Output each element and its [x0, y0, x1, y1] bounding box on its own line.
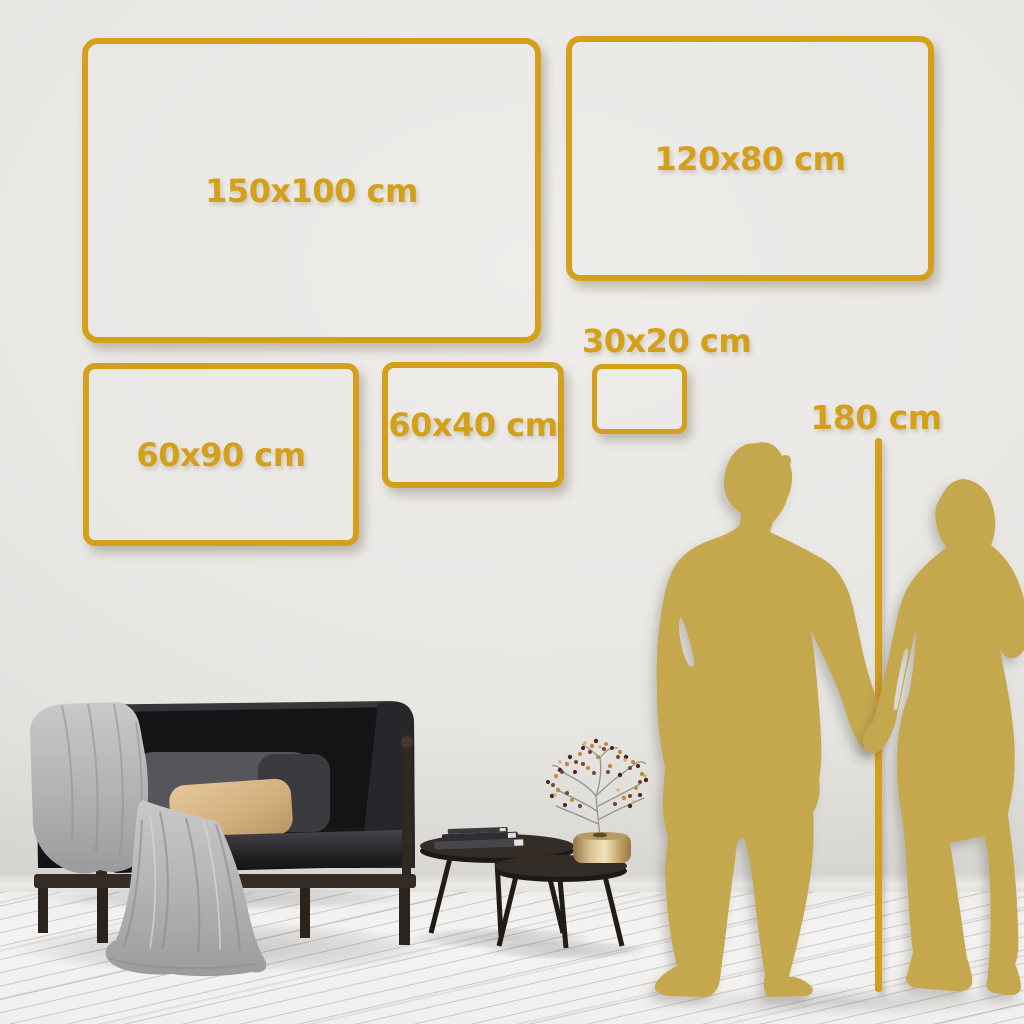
- book-stack: [434, 826, 525, 849]
- size-frame-150x100: 150x100 cm: [82, 38, 541, 343]
- size-frame-60x90: 60x90 cm: [83, 363, 359, 546]
- man-silhouette: [655, 442, 887, 997]
- size-label-30x20: 30x20 cm: [582, 322, 744, 360]
- woman-silhouette: [863, 479, 1024, 995]
- couple-silhouette: [630, 420, 1024, 1024]
- size-label-60x40: 60x40 cm: [388, 406, 557, 444]
- furniture-scene: [0, 680, 680, 1024]
- size-label-120x80: 120x80 cm: [655, 140, 846, 178]
- coffee-tables-illustration: [420, 739, 648, 948]
- size-frame-60x40: 60x40 cm: [382, 362, 564, 488]
- size-guide-image: 150x100 cm 120x80 cm 60x90 cm 60x40 cm 3…: [0, 0, 1024, 1024]
- size-label-150x100: 150x100 cm: [205, 172, 418, 210]
- size-label-60x90: 60x90 cm: [136, 436, 305, 474]
- brass-vase: [573, 832, 631, 863]
- size-frame-120x80: 120x80 cm: [566, 36, 934, 281]
- left-table: [420, 834, 574, 936]
